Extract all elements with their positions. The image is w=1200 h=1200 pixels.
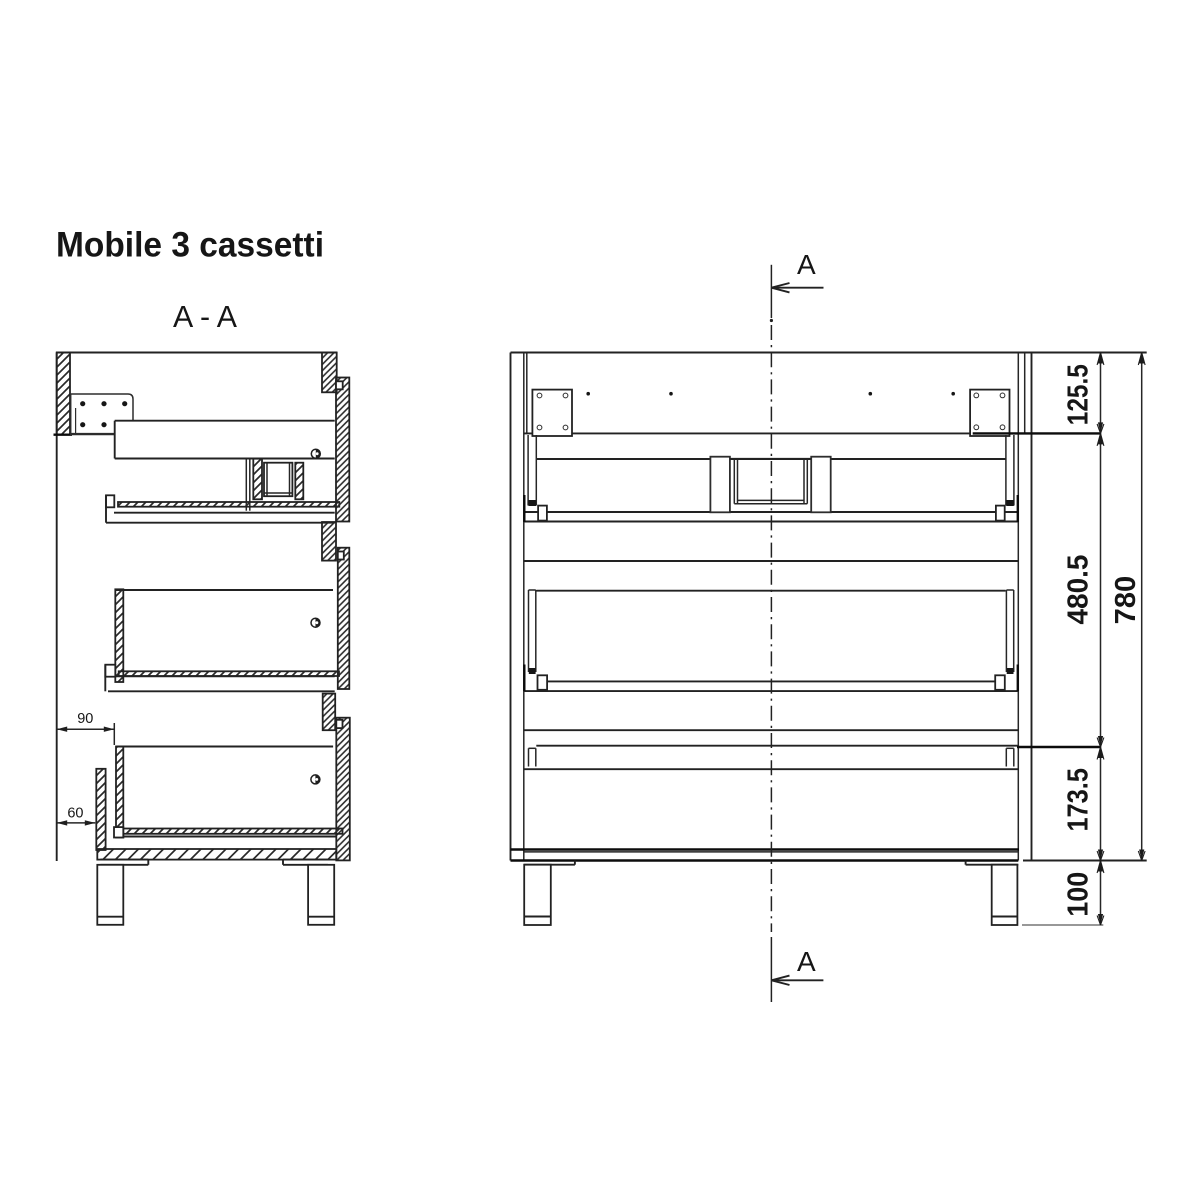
svg-text:90: 90	[77, 711, 93, 727]
svg-text:A - A: A - A	[173, 299, 237, 334]
svg-text:Mobile 3 cassetti: Mobile 3 cassetti	[56, 226, 324, 265]
svg-text:A: A	[797, 249, 816, 280]
svg-text:A: A	[797, 946, 816, 977]
svg-text:780: 780	[1110, 576, 1142, 625]
svg-text:60: 60	[67, 806, 83, 822]
svg-text:100: 100	[1062, 872, 1094, 917]
svg-text:125.5: 125.5	[1063, 364, 1095, 425]
svg-text:480.5: 480.5	[1062, 554, 1094, 624]
svg-text:173.5: 173.5	[1062, 768, 1094, 832]
